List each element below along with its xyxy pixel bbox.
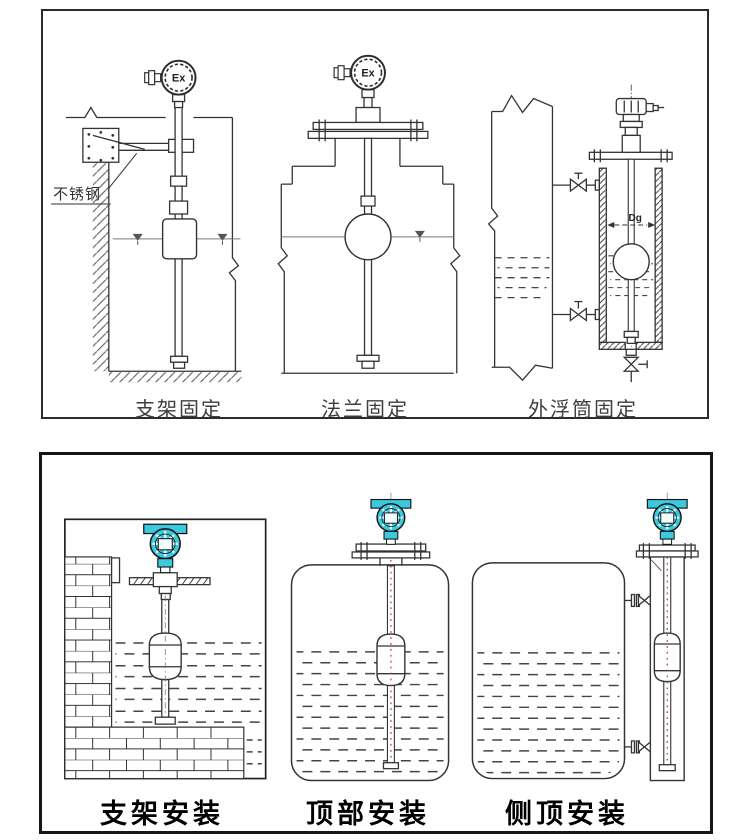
fixing-methods-drawing: Ex bbox=[43, 11, 707, 417]
dg-label: Dg bbox=[629, 213, 642, 224]
float bbox=[377, 634, 405, 685]
tank-bottom-break bbox=[492, 365, 553, 380]
diagram-top-mounting bbox=[292, 493, 449, 781]
brick-wall bbox=[65, 557, 112, 727]
tank-top-break bbox=[492, 96, 553, 113]
wall-mount-plate bbox=[83, 128, 145, 162]
stem-coupling bbox=[361, 196, 375, 206]
tank-wall-break bbox=[229, 117, 238, 371]
fixing-methods-panel: Ex bbox=[41, 9, 709, 419]
stem-coupling bbox=[171, 176, 187, 186]
caption-bracket-mounting: 支架安装 bbox=[82, 792, 242, 831]
flange bbox=[636, 543, 698, 559]
float bbox=[163, 219, 197, 259]
caption-bracket-fixing: 支架固定 bbox=[109, 393, 249, 422]
flange bbox=[352, 542, 430, 566]
tank-wall-left bbox=[489, 112, 498, 368]
ex-label: Ex bbox=[361, 68, 374, 80]
ex-label: Ex bbox=[172, 73, 185, 85]
stem-end-stop bbox=[383, 763, 398, 769]
ex-transmitter-head bbox=[145, 61, 196, 95]
tank bbox=[472, 563, 624, 779]
stem-clamp bbox=[153, 573, 177, 587]
diagram-bracket-mounting bbox=[65, 519, 266, 778]
tank bbox=[292, 565, 449, 781]
caption-external-chamber-fixing: 外浮筒固定 bbox=[498, 393, 668, 422]
wall-angle bbox=[112, 558, 120, 583]
diagram-bracket-fixing bbox=[51, 61, 241, 382]
caption-top-mounting: 顶部安装 bbox=[288, 792, 448, 831]
isolation-valve-top bbox=[552, 173, 599, 191]
tank-wall-right bbox=[451, 184, 460, 373]
chamber-transmitter-head bbox=[616, 85, 664, 153]
stem-coupling bbox=[170, 201, 188, 214]
ceiling-line bbox=[66, 108, 232, 118]
transmitter-head bbox=[371, 500, 411, 545]
stem-end-stop bbox=[659, 765, 675, 771]
chamber-flange bbox=[589, 152, 672, 159]
caption-side-top-mounting: 侧顶安装 bbox=[487, 792, 647, 831]
ball-float bbox=[613, 244, 649, 280]
diagram-flange-fixing bbox=[278, 56, 459, 373]
tank-wall-left bbox=[278, 184, 287, 373]
isolation-valve-bottom bbox=[552, 302, 599, 321]
conduit-connector bbox=[646, 104, 653, 112]
installation-styles-panel: 支架安装 顶部安装 侧顶安装 bbox=[39, 452, 713, 834]
ex-transmitter-head bbox=[334, 56, 385, 90]
transmitter-head bbox=[647, 500, 687, 545]
connection-valve-bottom bbox=[625, 741, 651, 753]
connection-valve-top bbox=[625, 595, 651, 607]
stem-end-stop bbox=[155, 717, 175, 724]
ball-float bbox=[345, 214, 391, 260]
page: { "page": {"width": 750, "height": 840, … bbox=[0, 0, 750, 840]
caption-flange-fixing: 法兰固定 bbox=[295, 393, 435, 422]
stem-end-stop bbox=[357, 355, 379, 361]
head-neck bbox=[356, 108, 380, 123]
sensor-stem bbox=[664, 557, 671, 633]
drain-valve bbox=[624, 349, 647, 382]
diagram-external-chamber-fixing bbox=[489, 85, 672, 383]
diagram-side-top-mounting bbox=[472, 493, 698, 781]
ground-hatch bbox=[109, 372, 242, 382]
installation-styles-drawing bbox=[42, 455, 710, 831]
tank-water bbox=[495, 258, 550, 298]
stainless-steel-label: 不锈钢 bbox=[45, 183, 109, 204]
stem-end-stop bbox=[171, 356, 188, 362]
brick-base bbox=[65, 727, 244, 778]
